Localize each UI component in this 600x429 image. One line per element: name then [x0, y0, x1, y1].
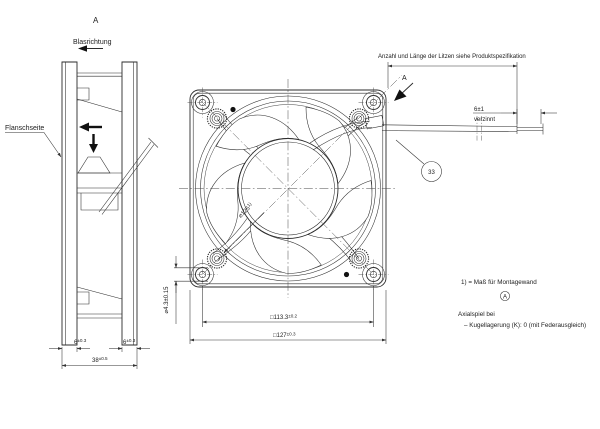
flange-side-label: Flanschseite: [5, 125, 44, 132]
blow-direction-arrow-icon: [78, 45, 103, 51]
note-axial-title: Axialspiel bei: [458, 311, 495, 318]
view-label-a: A: [93, 16, 99, 25]
ext-lines-flange: [62, 347, 137, 352]
dim-wire-end-length: 6±1: [474, 107, 485, 113]
technical-drawing-page: A Blasrichtung Flanschseite 6±0.3 6±0.3 …: [0, 0, 600, 429]
side-view-dimensions: 6±0.3 6±0.3 38±0.5: [49, 338, 150, 369]
side-view-blade-notch-bottom: [77, 292, 89, 304]
wire-pair: [382, 125, 517, 132]
dim-hole-spacing: □113.3±0.2: [270, 314, 298, 322]
side-view-right-flange: [122, 62, 137, 345]
tinned-wire-end: [517, 124, 543, 135]
litzen-note-dimension: Anzahl und Länge der Litzen siehe Produk…: [378, 54, 526, 124]
balloon-leader: [396, 140, 424, 164]
side-view-left-flange: [62, 62, 77, 345]
airflow-down-arrow-icon: [89, 134, 98, 153]
flange-side-leader: [5, 133, 61, 158]
side-view-hub-box: [81, 193, 118, 210]
screw-boss: [207, 249, 226, 268]
note-montagewand: 1) = Maß für Montagewand: [461, 279, 537, 286]
dim-frame-size: □127±0.3: [273, 332, 296, 340]
side-view-blade-edge-bottom: [77, 287, 122, 299]
litzen-note: Anzahl und Länge der Litzen siehe Produk…: [378, 54, 526, 60]
side-view-hub-trapezoid: [78, 157, 110, 173]
side-view-lead-wires: [99, 142, 154, 215]
balloon-number: 33: [428, 170, 435, 176]
fan-engineering-drawing: A Blasrichtung Flanschseite 6±0.3 6±0.3 …: [0, 0, 600, 429]
side-view-wire-end-tick: [149, 138, 159, 148]
side-view: [62, 62, 158, 345]
index-dot-bottom-right: [344, 272, 349, 277]
circled-a-letter: A: [503, 294, 507, 300]
side-view-bottom-strut: [77, 314, 122, 318]
view-direction-arrow: A: [394, 75, 413, 101]
blow-direction-label: Blasrichtung: [73, 39, 112, 46]
hole-dia-dimension: ⌀4.3±0.15: [164, 256, 208, 324]
wire-end-finish-label: verzinnt: [474, 117, 495, 123]
note-axial-item: – Kugellagerung (K): 0 (mit Federausglei…: [464, 322, 586, 329]
side-view-blade-edge-top: [77, 99, 122, 112]
airflow-left-arrow-icon: [79, 123, 102, 132]
side-view-blade-notch-top: [77, 88, 89, 100]
dim-flange-left: 6±0.3: [74, 338, 87, 346]
balloon-callout: 33: [396, 140, 442, 182]
dim-hole-dia: ⌀4.3±0.15: [164, 286, 170, 314]
index-dot-top-left: [230, 107, 235, 112]
dim-depth: 38±0.5: [92, 356, 108, 364]
front-view: ⌀1251): [179, 75, 402, 298]
view-arrow-label: A: [402, 75, 407, 82]
side-view-top-strut: [77, 73, 122, 76]
notes-block: 1) = Maß für Montagewand A Axialspiel be…: [458, 279, 586, 329]
